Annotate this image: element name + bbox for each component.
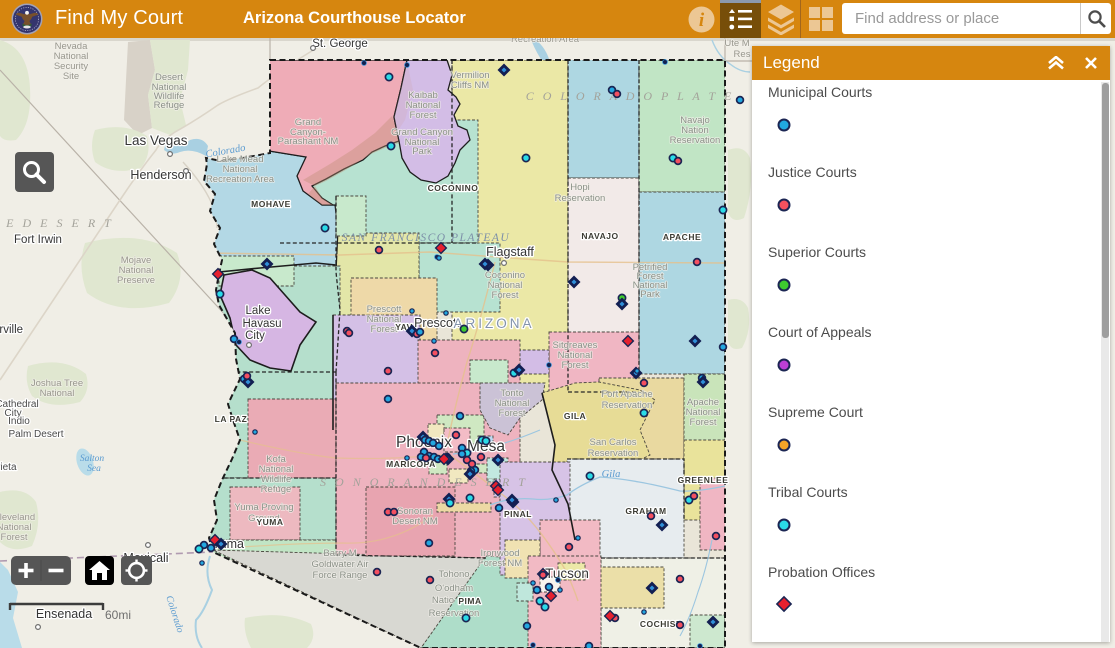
svg-text:Park: Park — [640, 289, 660, 300]
svg-text:i: i — [699, 10, 705, 31]
svg-text:LA PAZ: LA PAZ — [215, 414, 248, 424]
svg-text:COCONINO: COCONINO — [428, 183, 479, 193]
svg-text:Sea: Sea — [87, 464, 101, 474]
svg-text:60mi: 60mi — [105, 608, 131, 622]
svg-text:Reservation: Reservation — [555, 193, 606, 204]
svg-text:Parashant NM: Parashant NM — [278, 136, 339, 147]
svg-text:GILA: GILA — [564, 411, 586, 421]
svg-text:PINAL: PINAL — [504, 509, 532, 519]
svg-text:SAN FRANCISCO PLATEAU: SAN FRANCISCO PLATEAU — [342, 232, 510, 244]
svg-text:Forest: Forest — [1, 532, 28, 543]
svg-text:Site: Site — [63, 71, 79, 82]
svg-text:Forest: Forest — [562, 360, 589, 371]
svg-text:Flagstaff: Flagstaff — [486, 245, 534, 259]
svg-text:NAVAJO: NAVAJO — [581, 231, 618, 241]
svg-text:E D E S E R T: E D E S E R T — [5, 216, 114, 230]
svg-text:Forest: Forest — [410, 110, 437, 121]
svg-text:Reservation: Reservation — [429, 608, 480, 619]
svg-text:Yuma Proving: Yuma Proving — [234, 502, 293, 513]
svg-text:Tucson: Tucson — [545, 566, 589, 581]
svg-text:Goldwater Air: Goldwater Air — [311, 559, 368, 570]
svg-text:C O L O R A D O P L A T E: C O L O R A D O P L A T E — [526, 89, 735, 103]
svg-text:Desert NM: Desert NM — [392, 516, 437, 527]
svg-text:Forest: Forest — [690, 417, 717, 428]
svg-text:Ute M: Ute M — [724, 38, 749, 49]
svg-text:irrieta: irrieta — [0, 462, 17, 473]
svg-text:Indio: Indio — [8, 416, 30, 427]
svg-text:orville: orville — [0, 324, 23, 336]
svg-text:San Carlos: San Carlos — [590, 437, 637, 448]
svg-text:Tohono: Tohono — [438, 569, 469, 580]
svg-text:Forest: Forest — [371, 324, 398, 335]
svg-text:Forest: Forest — [499, 408, 526, 419]
svg-text:City: City — [245, 330, 265, 342]
svg-text:Hopi: Hopi — [570, 182, 590, 193]
svg-text:Fort Irwin: Fort Irwin — [14, 234, 62, 246]
svg-text:APACHE: APACHE — [663, 232, 701, 242]
svg-text:COCHISE: COCHISE — [640, 619, 682, 629]
svg-text:St. George: St. George — [312, 38, 368, 50]
svg-text:Refuge: Refuge — [154, 100, 185, 111]
svg-text:Reservation: Reservation — [670, 135, 721, 146]
svg-text:Henderson: Henderson — [130, 168, 191, 182]
svg-text:Reservation: Reservation — [588, 448, 639, 459]
svg-text:YUMA: YUMA — [256, 517, 283, 527]
svg-text:Force Range: Force Range — [313, 570, 368, 581]
svg-text:Refuge: Refuge — [261, 484, 292, 495]
svg-text:Natio: Natio — [432, 595, 454, 606]
svg-text:Forest NM: Forest NM — [478, 558, 522, 569]
svg-text:Recreation Area: Recreation Area — [206, 174, 275, 185]
svg-text:Cliffs NM: Cliffs NM — [451, 80, 489, 91]
svg-text:GRAHAM: GRAHAM — [625, 506, 666, 516]
svg-text:National: National — [40, 388, 75, 399]
svg-text:O'odham: O'odham — [435, 583, 473, 594]
svg-text:Palm Desert: Palm Desert — [8, 429, 63, 440]
svg-text:PIMA: PIMA — [458, 596, 481, 606]
svg-text:Res: Res — [734, 49, 751, 60]
svg-text:Park: Park — [412, 146, 432, 157]
svg-text:Las Vegas: Las Vegas — [124, 133, 187, 148]
svg-text:Barry M: Barry M — [323, 548, 356, 559]
svg-text:GREENLEE: GREENLEE — [678, 475, 729, 485]
svg-text:Preserve: Preserve — [117, 275, 155, 286]
svg-text:Forest: Forest — [492, 290, 519, 301]
svg-text:Lake: Lake — [246, 305, 271, 317]
svg-text:Fort Apache: Fort Apache — [601, 389, 652, 400]
svg-text:Gila: Gila — [602, 469, 621, 480]
svg-text:Havasu: Havasu — [243, 318, 282, 330]
svg-text:Salton: Salton — [80, 454, 105, 464]
svg-text:MOHAVE: MOHAVE — [251, 199, 291, 209]
